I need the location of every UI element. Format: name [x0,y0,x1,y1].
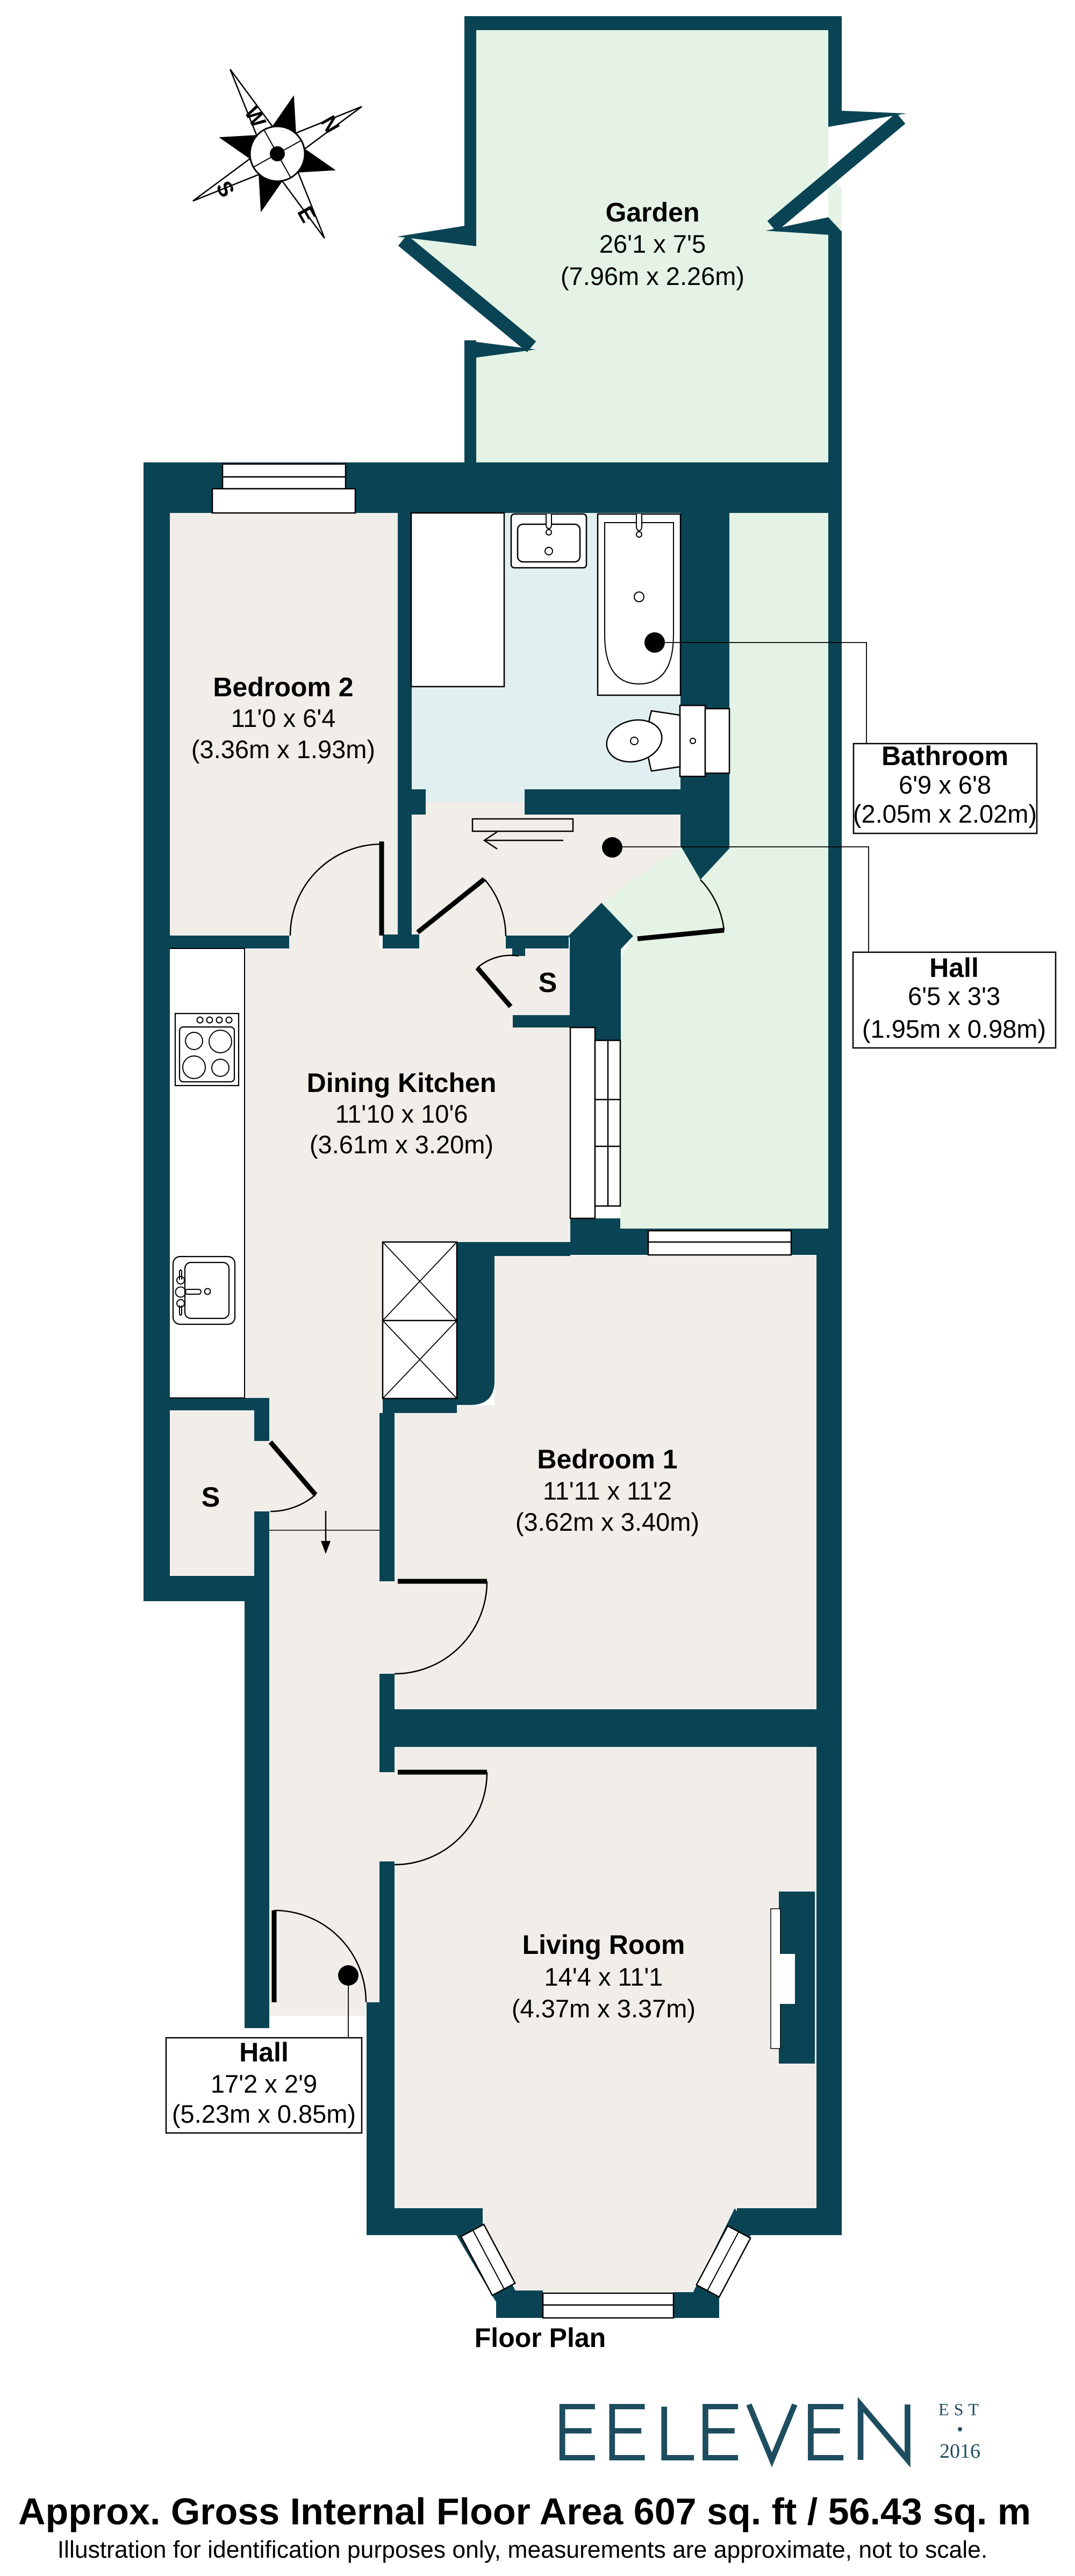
svg-text:Illustration for identificatio: Illustration for identification purposes… [58,2537,988,2563]
svg-text:11'11 x 11'2: 11'11 x 11'2 [543,1476,672,1505]
svg-text:Hall: Hall [239,2037,289,2067]
svg-text:(2.05m x 2.02m): (2.05m x 2.02m) [853,800,1037,828]
svg-text:S: S [539,967,557,998]
svg-text:EST: EST [938,2400,984,2419]
svg-text:11'10 x 10'6: 11'10 x 10'6 [335,1100,468,1128]
svg-text:2016: 2016 [940,2440,980,2463]
svg-text:14'4 x 11'1: 14'4 x 11'1 [544,1963,663,1991]
svg-text:Bedroom 1: Bedroom 1 [537,1444,677,1474]
svg-text:11'0 x 6'4: 11'0 x 6'4 [231,704,336,732]
svg-text:(3.36m x 1.93m): (3.36m x 1.93m) [191,735,375,763]
svg-text:6'5 x 3'3: 6'5 x 3'3 [908,982,1000,1010]
svg-text:(4.37m x 3.37m): (4.37m x 3.37m) [512,1994,696,2023]
svg-text:Approx. Gross Internal Floor A: Approx. Gross Internal Floor Area 607 sq… [18,2491,1031,2532]
svg-text:(7.96m x 2.26m): (7.96m x 2.26m) [561,262,744,290]
svg-text:17'2 x 2'9: 17'2 x 2'9 [211,2070,317,2098]
svg-text:(3.61m x 3.20m): (3.61m x 3.20m) [310,1130,493,1159]
svg-text:(3.62m x 3.40m): (3.62m x 3.40m) [515,1508,699,1536]
svg-text:S: S [202,1482,220,1513]
svg-text:Garden: Garden [605,197,699,227]
svg-text:(5.23m x 0.85m): (5.23m x 0.85m) [172,2100,356,2128]
svg-text:Hall: Hall [929,953,979,983]
svg-text:26'1 x 7'5: 26'1 x 7'5 [599,230,706,258]
svg-text:Bedroom 2: Bedroom 2 [213,672,353,702]
svg-text:Floor Plan: Floor Plan [475,2323,606,2353]
svg-text:Bathroom: Bathroom [881,741,1008,771]
svg-text:Dining Kitchen: Dining Kitchen [307,1068,497,1098]
svg-text:Living Room: Living Room [522,1930,685,1960]
svg-text:6'9 x 6'8: 6'9 x 6'8 [899,770,991,799]
svg-text:(1.95m x 0.98m): (1.95m x 0.98m) [862,1015,1046,1043]
